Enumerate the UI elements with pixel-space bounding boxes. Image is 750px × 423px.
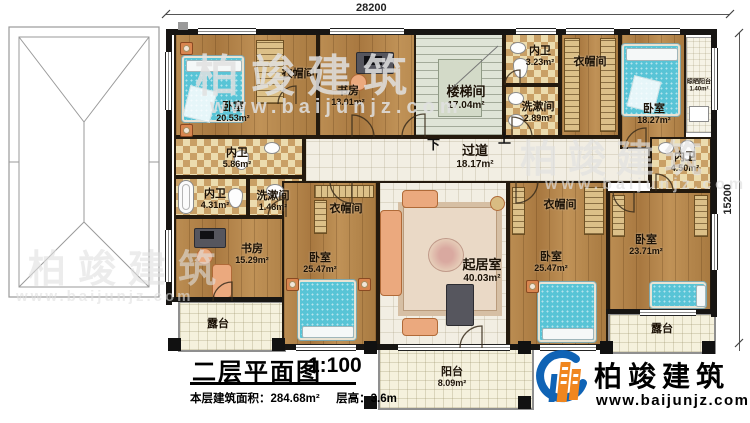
top-dimension-value: 28200 (352, 2, 391, 14)
room-area: 17.04m² (446, 100, 485, 111)
room-name: 阳台 (438, 366, 467, 378)
label-closet-right: 衣帽间 (544, 199, 577, 211)
room-area: 15.29m² (235, 255, 269, 265)
label-stairwell: 楼梯间 17.04m² (446, 85, 485, 111)
label-wash-left: 洗漱间 1.48m² (257, 190, 290, 212)
title-underline (190, 382, 356, 385)
floor-area-label: 本层建筑面积： (190, 393, 271, 405)
rug-medallion (428, 238, 464, 272)
sink (510, 42, 526, 54)
room-name: 内卫 (671, 151, 700, 163)
wardrobe-hatch (314, 200, 327, 234)
pillow (542, 328, 594, 340)
balcony-door-window (398, 344, 510, 351)
room-name: 卧室 (637, 103, 671, 115)
label-closet-tr: 衣帽间 (574, 56, 607, 68)
wardrobe-hatch (564, 38, 580, 132)
room-name: 衣帽间 (330, 203, 363, 215)
stair-up-label: 上 (498, 128, 511, 147)
room-name: 书房 (331, 85, 365, 97)
window (165, 52, 172, 110)
window (566, 28, 614, 35)
label-drying-balcony: 晾晒阳台 1.40m² (687, 79, 711, 92)
chimney (178, 22, 188, 30)
wall (170, 297, 282, 302)
room-area: 20.53m² (216, 113, 250, 123)
floor-area-value: 284.68m² (271, 393, 320, 405)
wardrobe-hatch (694, 195, 708, 237)
window (711, 214, 718, 270)
label-closet-tl: 衣帽间 (282, 68, 315, 80)
column (518, 341, 531, 354)
label-study-left: 书房 15.29m² (235, 243, 269, 265)
window (198, 28, 256, 35)
nightstand (180, 42, 193, 55)
label-terrace-right: 露台 (651, 323, 673, 335)
room-area: 5.86m² (223, 159, 252, 169)
column (364, 341, 377, 354)
room-name: 卧室 (216, 101, 250, 113)
wardrobe-hatch (600, 38, 616, 132)
label-bedroom-mr: 卧室 25.47m² (534, 251, 568, 273)
label-bedroom-tr: 卧室 18.27m² (637, 103, 671, 125)
nightstand (286, 278, 299, 291)
armchair (402, 318, 438, 336)
company-name: 柏竣建筑 (594, 355, 730, 395)
room-area: 4.50m² (671, 163, 700, 173)
room-area: 25.47m² (303, 264, 337, 274)
washing-machine (689, 106, 709, 122)
room-area: 3.23m² (526, 57, 555, 67)
plan-scale: 1:100 (308, 354, 362, 378)
window (630, 28, 680, 35)
label-bath-left-upper: 内卫 5.86m² (223, 147, 252, 169)
room-area: 23.71m² (629, 246, 663, 256)
column (518, 396, 531, 409)
stair-down-label: 下 (427, 134, 440, 153)
room-area: 1.40m² (687, 86, 711, 93)
lounge-chair (212, 264, 232, 298)
computer-monitor (364, 56, 382, 65)
room-name: 内卫 (201, 188, 230, 200)
nightstand (358, 278, 371, 291)
room-name: 内卫 (223, 147, 252, 159)
room-area: 18.27m² (637, 115, 671, 125)
wardrobe-hatch (314, 185, 374, 198)
room-area: 18.17m² (456, 159, 493, 170)
wardrobe-hatch (612, 195, 625, 237)
floor-plan-canvas: 28200 15200 (0, 0, 750, 423)
room-area: 13.01m² (331, 97, 365, 107)
nightstand (180, 124, 193, 137)
window (330, 28, 404, 35)
room-name: 卧室 (534, 251, 568, 263)
room-name: 楼梯间 (446, 85, 485, 100)
label-bath-top: 内卫 3.23m² (526, 45, 555, 67)
room-area: 40.03m² (462, 273, 501, 284)
room-name: 洗漱间 (257, 190, 290, 202)
label-bath-left-lower: 内卫 4.31m² (201, 188, 230, 210)
pillow (696, 285, 706, 307)
room-name: 衣帽间 (282, 68, 315, 80)
label-balcony: 阳台 8.09m² (438, 366, 467, 388)
company-url: www.baijunjz.com (596, 392, 749, 409)
garage-roof-plan (8, 26, 160, 298)
label-terrace-left: 露台 (207, 318, 229, 330)
label-bedroom-br: 卧室 23.71m² (629, 234, 663, 256)
sofa (380, 210, 402, 296)
room-name: 起居室 (462, 258, 501, 273)
floor-area-line: 本层建筑面积：284.68m² 层高：3.6m (190, 390, 397, 406)
room-terrace-left (178, 301, 286, 352)
window (640, 309, 696, 316)
pillow (302, 326, 354, 338)
wardrobe-hatch (512, 187, 525, 235)
wardrobe-hatch (584, 187, 604, 235)
room-name: 过道 (456, 144, 493, 159)
company-logo-icon (534, 350, 588, 414)
label-closet-mid: 衣帽间 (330, 203, 363, 215)
window (296, 344, 356, 351)
label-bath-right: 内卫 4.50m² (671, 151, 700, 173)
room-name: 露台 (651, 323, 673, 335)
computer-monitor (200, 231, 214, 239)
room-name: 卧室 (629, 234, 663, 246)
floor-height-value: 3.6m (371, 393, 397, 405)
room-name: 晾晒阳台 (687, 79, 711, 86)
sink (264, 142, 280, 154)
window (516, 28, 556, 35)
column (168, 338, 181, 351)
floor-height-label: 层高： (336, 393, 371, 405)
desk-chair (196, 248, 213, 265)
right-dimension-line (739, 33, 740, 351)
label-bedroom-tl: 卧室 20.53m² (216, 101, 250, 123)
label-living: 起居室 40.03m² (462, 258, 501, 284)
column (600, 341, 613, 354)
right-dimension-value: 15200 (722, 180, 734, 219)
room-name: 露台 (207, 318, 229, 330)
bathtub (178, 180, 194, 214)
room-name: 书房 (235, 243, 269, 255)
room-name: 洗漱间 (522, 101, 555, 113)
nightstand (526, 280, 539, 293)
room-area: 2.89m² (522, 113, 555, 123)
room-name: 内卫 (526, 45, 555, 57)
room-area: 4.31m² (201, 200, 230, 210)
window (165, 230, 172, 282)
column (702, 341, 715, 354)
pillow (186, 60, 242, 72)
top-dimension-line (166, 14, 730, 15)
label-wash-top: 洗漱间 2.89m² (522, 101, 555, 123)
window (711, 48, 718, 110)
label-corridor: 过道 18.17m² (456, 144, 493, 170)
side-table (490, 196, 505, 211)
label-bedroom-bl: 卧室 25.47m² (303, 252, 337, 274)
piano (446, 284, 474, 326)
room-name: 衣帽间 (574, 56, 607, 68)
wardrobe-hatch (256, 40, 284, 104)
room-name: 卧室 (303, 252, 337, 264)
column (272, 338, 285, 351)
room-area: 25.47m² (534, 263, 568, 273)
label-study-tl: 书房 13.01m² (331, 85, 365, 107)
room-area: 1.48m² (257, 202, 290, 212)
armchair (402, 190, 438, 208)
pillow (626, 48, 678, 61)
room-name: 衣帽间 (544, 199, 577, 211)
room-area: 8.09m² (438, 378, 467, 388)
